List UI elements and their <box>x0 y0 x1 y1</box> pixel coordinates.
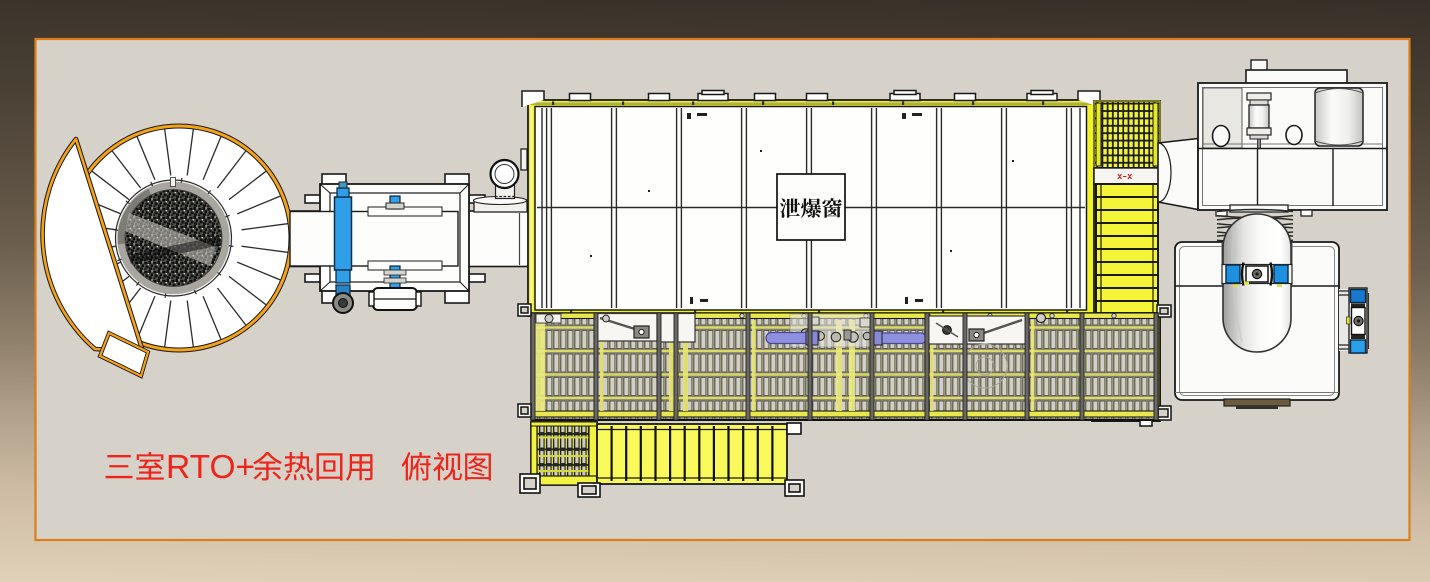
svg-text:RTO+: RTO+ <box>166 449 255 486</box>
